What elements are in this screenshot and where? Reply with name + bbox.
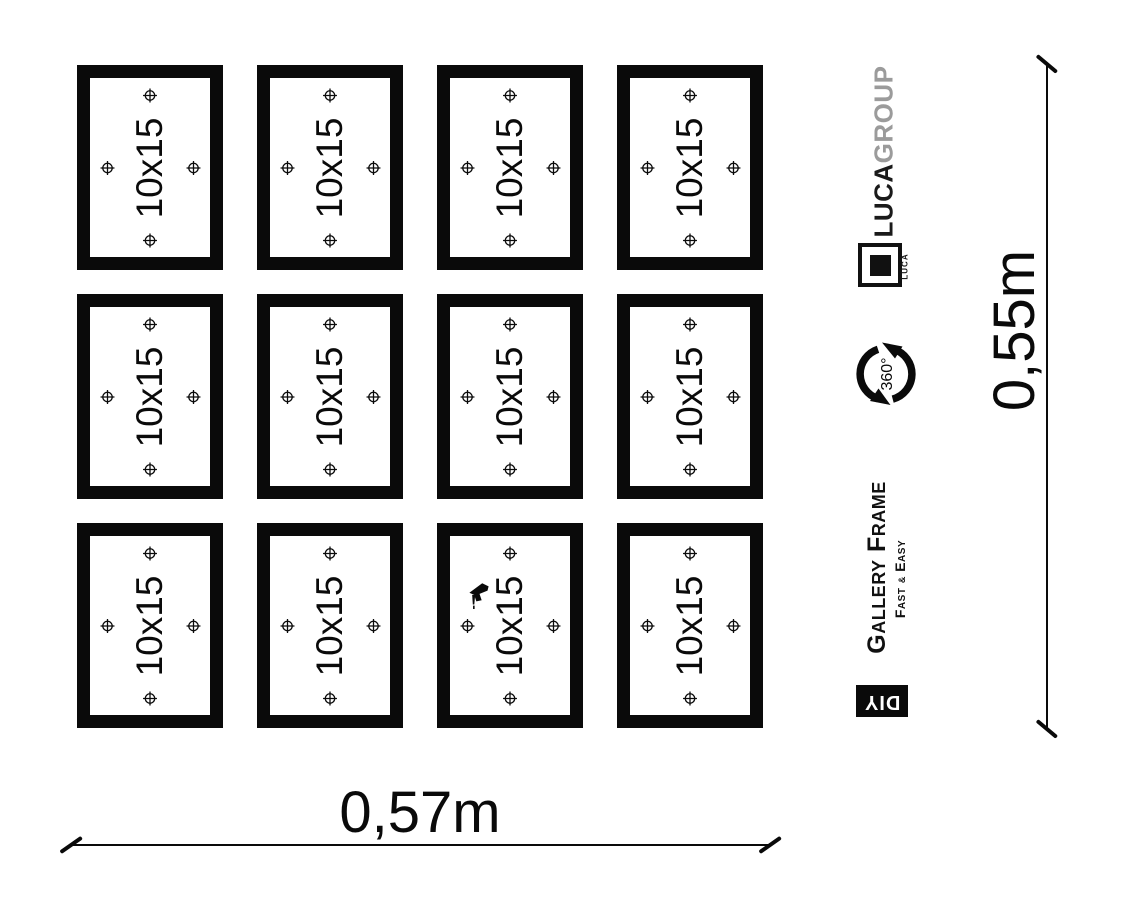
width-dimension-line xyxy=(70,844,771,846)
mount-crosshair-icon xyxy=(323,233,338,248)
mount-crosshair-icon xyxy=(546,160,561,175)
frame-size-label: 10x15 xyxy=(129,117,171,218)
frame-size-label: 10x15 xyxy=(129,575,171,676)
gallery-frame-layout-diagram: 10x15 10x15 xyxy=(0,0,1123,905)
mount-crosshair-icon xyxy=(186,160,201,175)
mount-crosshair-icon xyxy=(280,160,295,175)
mount-crosshair-icon xyxy=(323,546,338,561)
width-dimension-label: 0,57m xyxy=(300,782,540,842)
mount-crosshair-icon xyxy=(143,233,158,248)
height-dimension-label: 0,55m xyxy=(955,230,1075,430)
frames-grid: 10x15 10x15 xyxy=(77,65,763,728)
mount-crosshair-icon xyxy=(366,389,381,404)
photo-frame: 10x15 xyxy=(77,523,223,728)
frame-size-label: 10x15 xyxy=(129,346,171,447)
mount-crosshair-icon xyxy=(683,691,698,706)
photo-frame: 10x15 xyxy=(437,294,583,499)
mount-crosshair-icon xyxy=(323,317,338,332)
company-name-light: GROUP xyxy=(869,65,899,163)
mount-crosshair-icon xyxy=(546,389,561,404)
company-name-bold: LUCA xyxy=(869,163,899,237)
mount-crosshair-icon xyxy=(546,618,561,633)
product-subtitle: Fast & Easy xyxy=(886,527,914,631)
mount-crosshair-icon xyxy=(503,317,518,332)
mount-crosshair-icon xyxy=(503,462,518,477)
frame-size-label: 10x15 xyxy=(309,575,351,676)
photo-frame: 10x15 xyxy=(257,294,403,499)
mount-crosshair-icon xyxy=(683,462,698,477)
photo-frame: 10x15 xyxy=(77,65,223,270)
photo-frame: 10x15 xyxy=(617,65,763,270)
mount-crosshair-icon xyxy=(726,618,741,633)
rotation-360-icon: 360° xyxy=(851,338,921,410)
mount-crosshair-icon xyxy=(100,389,115,404)
frame-size-label: 10x15 xyxy=(489,346,531,447)
luca-logo-square-icon xyxy=(870,255,891,276)
frame-size-label: 10x15 xyxy=(489,117,531,218)
mount-crosshair-icon xyxy=(683,317,698,332)
mount-crosshair-icon xyxy=(143,317,158,332)
photo-frame: 10x15 xyxy=(257,65,403,270)
mount-crosshair-icon xyxy=(503,546,518,561)
photo-frame: 10x15 xyxy=(437,65,583,270)
mount-crosshair-icon xyxy=(323,462,338,477)
mount-crosshair-icon xyxy=(683,233,698,248)
mount-crosshair-icon xyxy=(143,691,158,706)
mount-crosshair-icon xyxy=(460,618,475,633)
company-wordmark: LUCAGROUP xyxy=(854,66,914,236)
frame-size-label: 10x15 xyxy=(309,117,351,218)
mount-crosshair-icon xyxy=(503,88,518,103)
mount-crosshair-icon xyxy=(100,618,115,633)
mount-crosshair-icon xyxy=(460,160,475,175)
mount-crosshair-icon xyxy=(503,691,518,706)
height-dimension-line xyxy=(1046,66,1048,730)
photo-frame: 10x15 xyxy=(257,523,403,728)
frame-size-label: 10x15 xyxy=(489,575,531,676)
rotation-360-label: 360° xyxy=(879,357,896,390)
frame-size-label: 10x15 xyxy=(669,346,711,447)
photo-frame: 10x15 xyxy=(437,523,583,728)
mount-crosshair-icon xyxy=(186,389,201,404)
mount-crosshair-icon xyxy=(323,691,338,706)
mount-crosshair-icon xyxy=(460,389,475,404)
mount-crosshair-icon xyxy=(100,160,115,175)
diy-badge-label: DIY xyxy=(864,690,900,713)
mount-crosshair-icon xyxy=(143,546,158,561)
photo-frame: 10x15 xyxy=(617,294,763,499)
mount-crosshair-icon xyxy=(503,233,518,248)
mount-crosshair-icon xyxy=(640,160,655,175)
luca-logo-caption: LUCA xyxy=(895,243,915,289)
photo-frame: 10x15 xyxy=(77,294,223,499)
mount-crosshair-icon xyxy=(366,618,381,633)
mount-crosshair-icon xyxy=(683,88,698,103)
mount-crosshair-icon xyxy=(726,389,741,404)
frame-size-label: 10x15 xyxy=(309,346,351,447)
mount-crosshair-icon xyxy=(186,618,201,633)
frame-size-label: 10x15 xyxy=(669,117,711,218)
mount-crosshair-icon xyxy=(323,88,338,103)
photo-frame: 10x15 xyxy=(617,523,763,728)
mount-crosshair-icon xyxy=(640,389,655,404)
frame-size-label: 10x15 xyxy=(669,575,711,676)
mount-crosshair-icon xyxy=(280,389,295,404)
mount-crosshair-icon xyxy=(280,618,295,633)
mount-crosshair-icon xyxy=(683,546,698,561)
mount-crosshair-icon xyxy=(366,160,381,175)
ampersand: & xyxy=(897,576,907,583)
mount-crosshair-icon xyxy=(143,88,158,103)
mount-crosshair-icon xyxy=(726,160,741,175)
mount-crosshair-icon xyxy=(640,618,655,633)
mount-crosshair-icon xyxy=(143,462,158,477)
diy-badge: DIY xyxy=(856,685,908,717)
